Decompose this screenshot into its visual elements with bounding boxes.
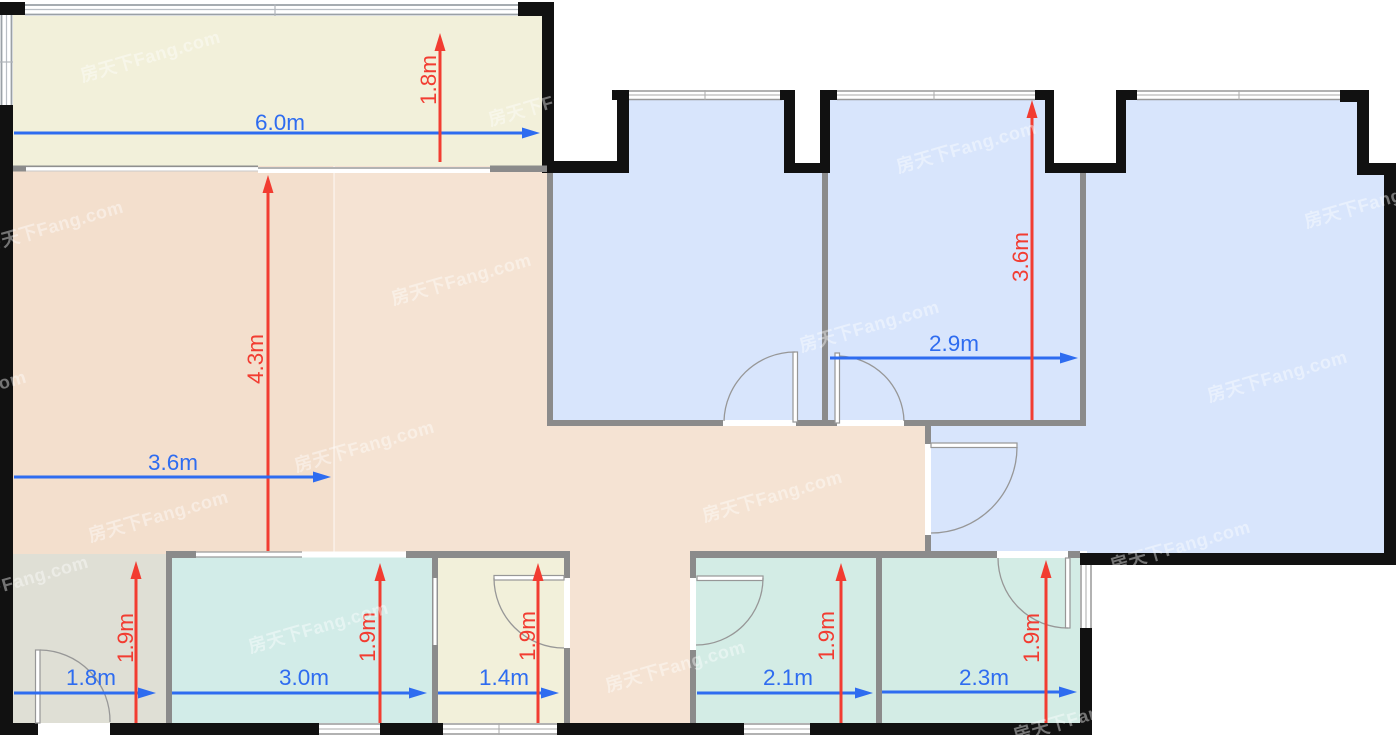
svg-text:1.4m: 1.4m [479,665,529,690]
svg-text:2.1m: 2.1m [763,665,813,690]
svg-text:1.9m: 1.9m [515,611,540,661]
svg-text:4.3m: 4.3m [243,334,268,384]
svg-text:6.0m: 6.0m [255,110,305,135]
svg-text:2.3m: 2.3m [959,665,1009,690]
svg-text:1.8m: 1.8m [66,665,116,690]
svg-text:3.0m: 3.0m [279,665,329,690]
svg-text:2.9m: 2.9m [929,331,979,356]
svg-text:1.9m: 1.9m [113,613,138,663]
svg-text:1.9m: 1.9m [814,611,839,661]
svg-text:3.6m: 3.6m [1008,232,1033,282]
svg-text:1.8m: 1.8m [416,55,441,105]
svg-text:3.6m: 3.6m [148,450,198,475]
svg-text:1.9m: 1.9m [1019,613,1044,663]
